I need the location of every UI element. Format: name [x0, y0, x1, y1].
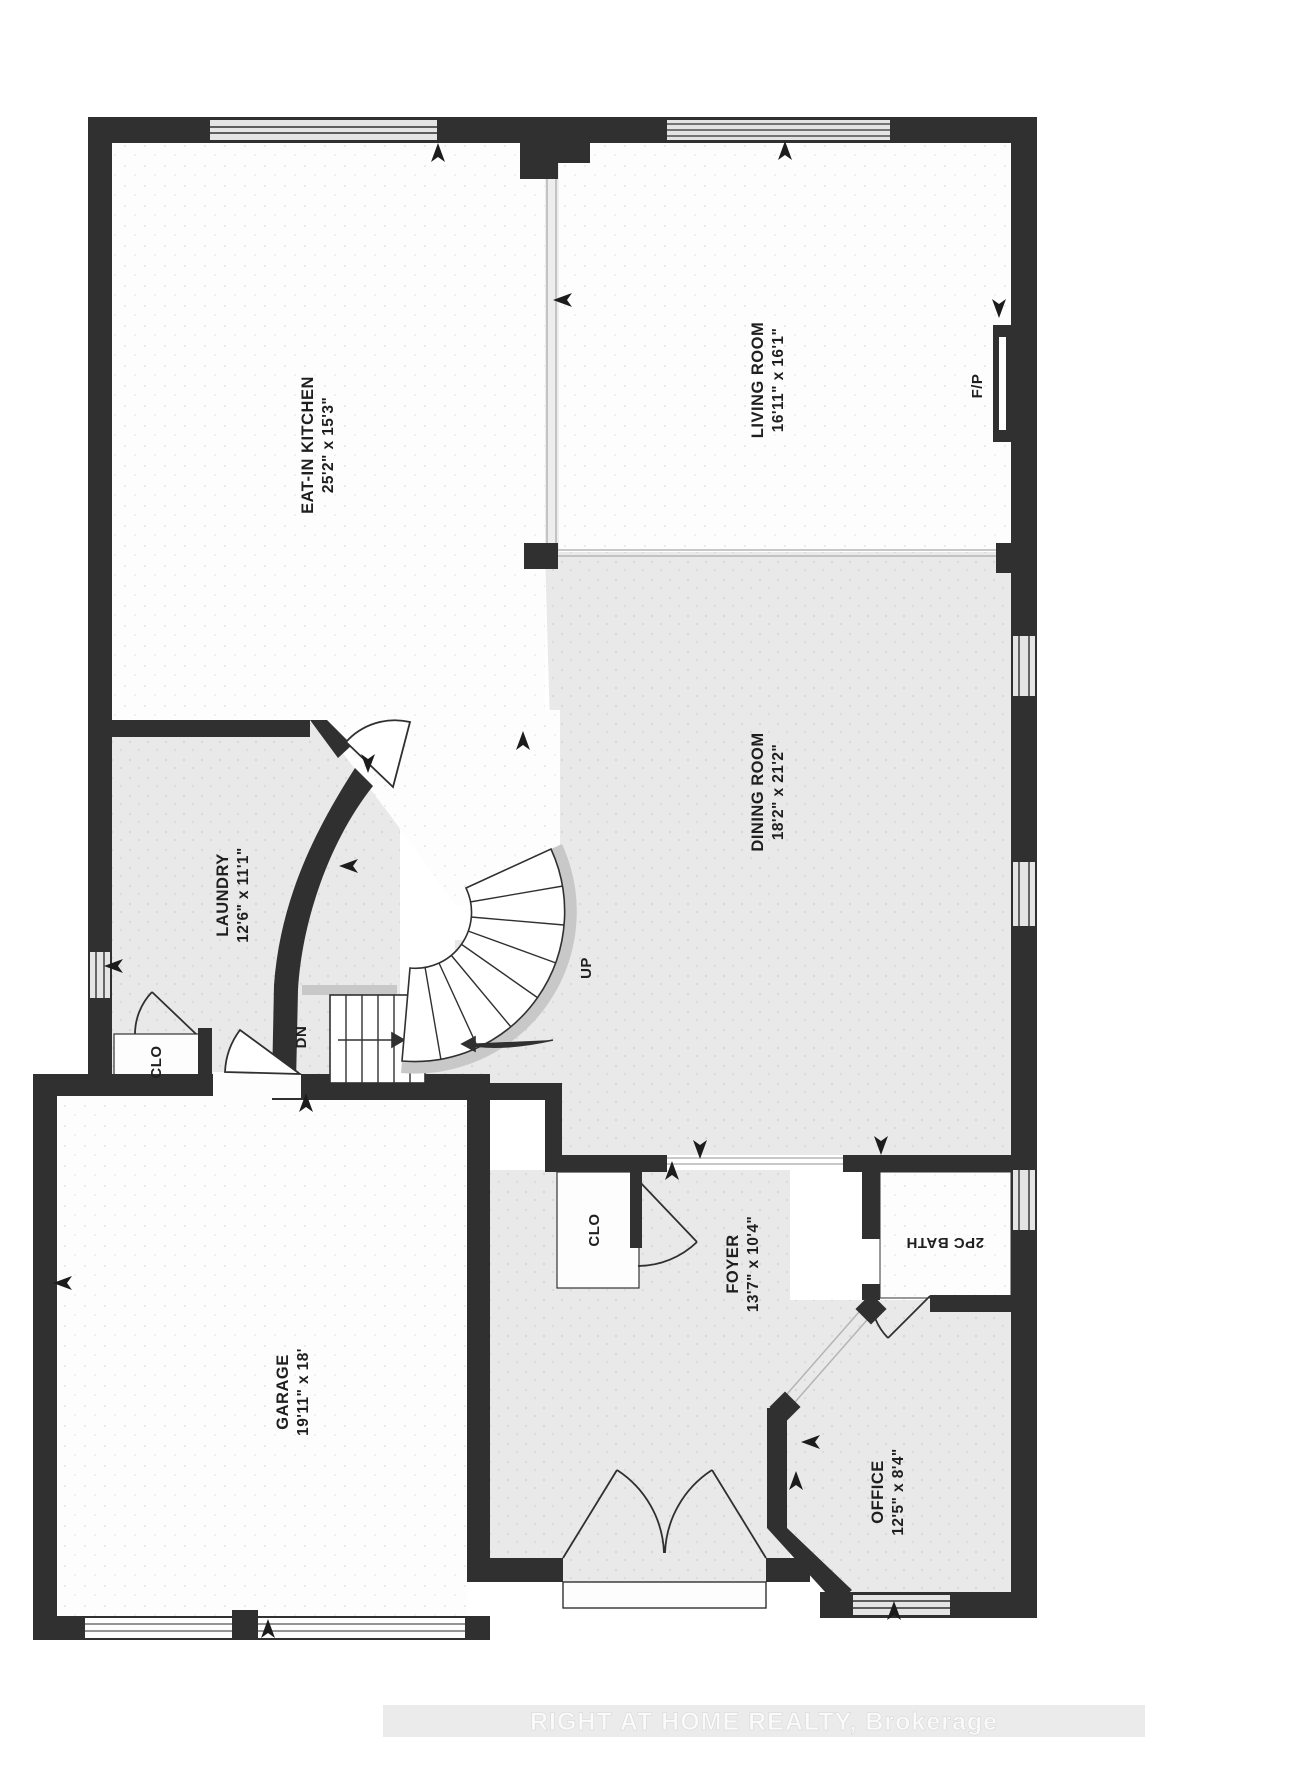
stairs-down-text: DN	[293, 1026, 310, 1049]
living-name: LIVING ROOM	[749, 322, 767, 438]
wall-office-left	[767, 1408, 787, 1528]
kitchen-dims: 25'2" x 15'3"	[320, 397, 337, 493]
label-closet-b: CLO	[586, 1213, 603, 1246]
window-dining-right-b	[1013, 862, 1035, 926]
wall-bath-left-stub	[862, 1155, 880, 1239]
floor-plan-drawing: EAT-IN KITCHEN 25'2" x 15'3" LIVING ROOM…	[0, 0, 1300, 1785]
living-dims: 16'11" x 16'1"	[770, 328, 787, 432]
wall-foyer-top	[555, 1155, 667, 1172]
window-dining-right-a	[1013, 636, 1035, 696]
laundry-dims: 12'6" x 11'1"	[235, 847, 252, 942]
wall-garage-right	[467, 1096, 490, 1558]
front-threshold	[563, 1582, 766, 1608]
watermark-text: RIGHT AT HOME REALTY, Brokerage	[530, 1708, 998, 1736]
kitchen-name: EAT-IN KITCHEN	[299, 376, 317, 514]
office-dims: 12'5" x 8'4"	[890, 1448, 907, 1535]
label-up: UP	[578, 957, 595, 979]
garage-name: GARAGE	[274, 1354, 292, 1429]
floor-plan-page: EAT-IN KITCHEN 25'2" x 15'3" LIVING ROOM…	[0, 0, 1300, 1785]
foyer-name: FOYER	[724, 1234, 742, 1293]
window-laundry-left	[90, 952, 110, 998]
dining-dims: 18'2" x 21'2"	[770, 744, 787, 840]
label-fireplace: F/P	[969, 374, 986, 399]
garage-dims: 19'11" x 18'	[295, 1348, 312, 1436]
foyer-dims: 13'7" x 10'4"	[745, 1216, 762, 1312]
dining-floor	[545, 552, 1011, 1155]
wall-living-dining-stub	[524, 543, 558, 569]
label-bath: 2PC BATH	[906, 1234, 984, 1251]
window-bath-right	[1013, 1170, 1035, 1230]
office-name: OFFICE	[869, 1460, 887, 1524]
bath-name: 2PC BATH	[906, 1234, 984, 1251]
window-kitchen-top	[210, 120, 437, 140]
wall-garage-left	[33, 1074, 57, 1640]
wall-foyer-bottom-left	[467, 1558, 563, 1582]
dining-name: DINING ROOM	[749, 732, 767, 851]
wall-laundry-top	[88, 720, 310, 737]
window-office-bottom	[853, 1595, 950, 1615]
wall-closet-a	[198, 1028, 212, 1078]
wall-foyer-bottom-right	[766, 1558, 810, 1582]
fireplace-text: F/P	[969, 374, 986, 399]
watermark: RIGHT AT HOME REALTY, Brokerage	[383, 1705, 1145, 1737]
window-living-top	[667, 120, 890, 140]
laundry-name: LAUNDRY	[214, 853, 232, 937]
closet-b-text: CLO	[586, 1213, 603, 1246]
label-down: DN	[293, 1026, 310, 1049]
stairs-up-text: UP	[578, 957, 595, 979]
wall-bath-bottom	[930, 1295, 1011, 1312]
label-closet-a: CLO	[148, 1045, 165, 1078]
garage-floor	[57, 1096, 467, 1616]
closet-a-text: CLO	[148, 1045, 165, 1078]
wall-left-upper	[88, 143, 112, 1076]
door-garage-gap	[213, 1072, 301, 1098]
fireplace-slot	[999, 337, 1006, 430]
